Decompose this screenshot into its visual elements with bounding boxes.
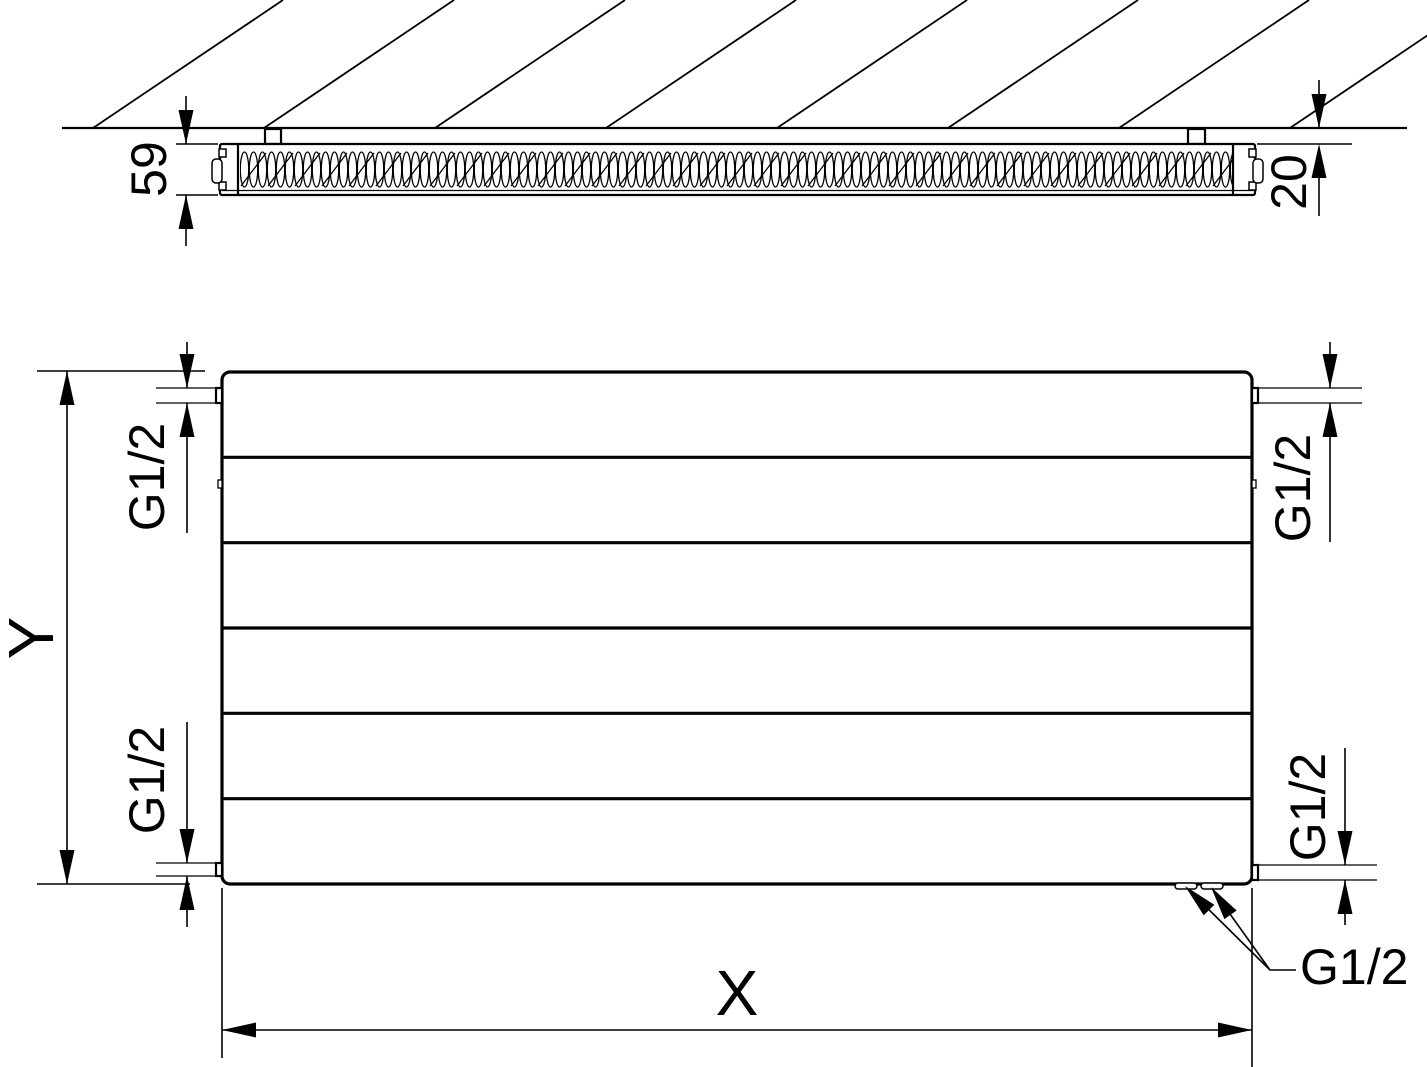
connection-label-bottom-right-side: G1/2 bbox=[1280, 753, 1336, 861]
front-view: G1/2 G1/2 G1/2 G1/2 bbox=[0, 342, 1408, 1067]
wall-gap-dimension-label: 20 bbox=[1261, 154, 1317, 210]
mounting-bracket-right bbox=[1188, 129, 1205, 144]
depth-dimension-label: 59 bbox=[121, 141, 177, 197]
mounting-bracket-left bbox=[265, 129, 281, 144]
wall-hatching bbox=[93, 0, 1427, 128]
dimension-connection-top-right: G1/2 bbox=[1265, 342, 1338, 542]
connection-stub-bottom-right bbox=[1252, 865, 1377, 880]
dimension-depth: 59 bbox=[121, 96, 218, 246]
top-view: 59 20 bbox=[62, 0, 1427, 246]
connection-stub-top-left bbox=[156, 388, 222, 403]
connection-label-bottom-left: G1/2 bbox=[119, 726, 175, 834]
connection-stub-top-right bbox=[1252, 388, 1362, 403]
radiator-section-body bbox=[212, 144, 1263, 195]
convector-fins bbox=[240, 150, 1233, 189]
dimension-connection-bottom-left: G1/2 bbox=[119, 722, 195, 927]
dimension-connection-bottom-right: G1/2 bbox=[1280, 748, 1353, 925]
edge-nub-right bbox=[1252, 480, 1256, 488]
connection-stub-bottom-left bbox=[156, 863, 222, 876]
bottom-connection-boss bbox=[1175, 883, 1197, 889]
dimension-width-X: X bbox=[222, 888, 1252, 1067]
radiator-technical-drawing: 59 20 bbox=[0, 0, 1427, 1067]
width-dimension-label: X bbox=[716, 957, 759, 1029]
connection-label-bottom: G1/2 bbox=[1300, 939, 1408, 995]
dimension-wall-gap: 20 bbox=[1257, 80, 1352, 216]
connection-label-top-left: G1/2 bbox=[119, 423, 175, 531]
height-dimension-label: Y bbox=[0, 617, 67, 660]
connection-label-top-right: G1/2 bbox=[1265, 434, 1321, 542]
bottom-connections-leader: G1/2 bbox=[1175, 881, 1408, 995]
edge-nub-left bbox=[218, 480, 222, 488]
